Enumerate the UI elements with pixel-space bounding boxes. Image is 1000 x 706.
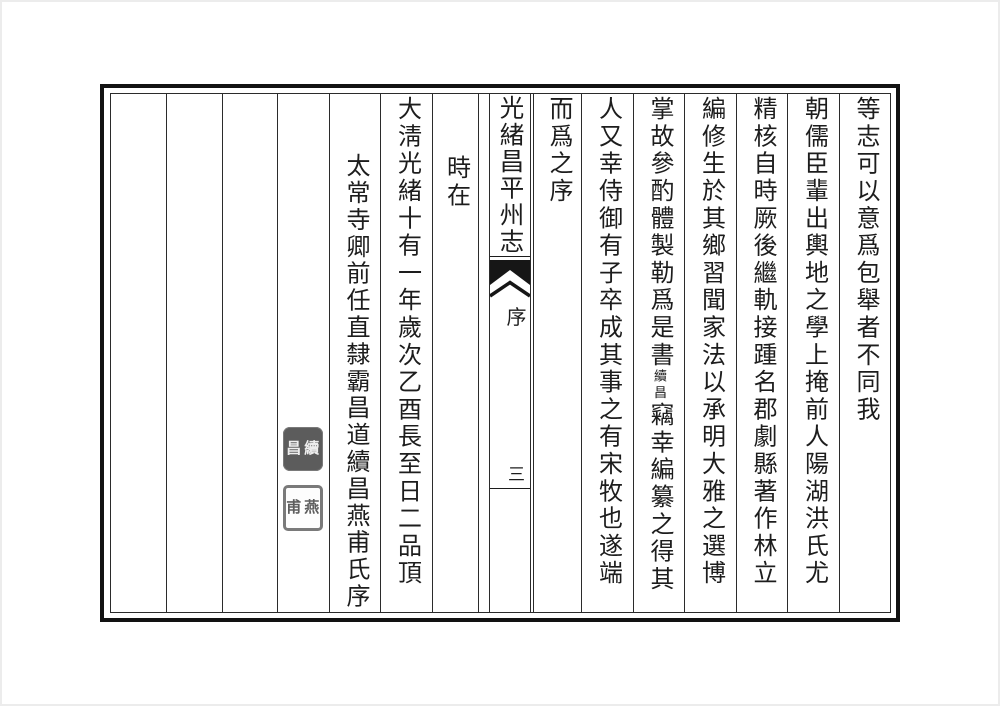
banxin-divider-line (490, 256, 530, 257)
text-column-3: 精核自時厥後繼軌接踵名郡劇縣著作林立繆 (736, 94, 788, 612)
text-column-10-signature: 太常寺卿前任直隸霸昌道續昌燕甫氏序 (329, 94, 381, 612)
text-columns-area: 等志可以意爲包舉者不同我 朝儒臣輩出輿地之學上掩前人陽湖洪氏尤爲 精核自時厥後繼… (111, 94, 890, 612)
text-column-7: 而爲之序 (533, 94, 582, 612)
seal-stamp-xuchang: 續 昌 (283, 427, 323, 471)
book-page-scan: { "banxin": { "title": "光緒昌平州志", "sectio… (0, 0, 1000, 706)
banxin-strip: 光緒昌平州志 序 三 (489, 94, 531, 612)
empty-column (111, 94, 166, 612)
interlinear-note: 續昌 (649, 369, 667, 402)
text-column-6: 人又幸侍御有子卒成其事之有宋牧也遂端牘 (581, 94, 633, 612)
banxin-column: 光緒昌平州志 序 三 (478, 94, 533, 612)
text-column-5: 掌故參酌體製勒爲是書續昌竊幸編纂之得其 (633, 94, 685, 612)
empty-column (166, 94, 221, 612)
seal-stamp-yanfu: 燕 甫 (283, 485, 323, 531)
page-number: 三 (497, 460, 537, 485)
seal-column: 續 昌 燕 甫 (277, 94, 329, 612)
book-title: 光緒昌平州志 (490, 95, 530, 255)
text-column-4: 編修生於其鄉習聞家法以承明大雅之選博稽 (684, 94, 736, 612)
section-label: 序 (497, 301, 537, 330)
empty-column (222, 94, 277, 612)
text-column-2: 朝儒臣輩出輿地之學上掩前人陽湖洪氏尤爲 (787, 94, 839, 612)
outer-border-frame: 等志可以意爲包舉者不同我 朝儒臣輩出輿地之學上掩前人陽湖洪氏尤爲 精核自時厥後繼… (100, 84, 900, 622)
inner-border-frame: 等志可以意爲包舉者不同我 朝儒臣輩出輿地之學上掩前人陽湖洪氏尤爲 精核自時厥後繼… (110, 93, 891, 613)
seal-char: 燕 (303, 501, 321, 516)
column-5-main-text: 掌故參酌體製勒爲是書 (646, 96, 672, 369)
seal-char: 甫 (285, 501, 303, 516)
text-column-1: 等志可以意爲包舉者不同我 (839, 94, 891, 612)
column-5-continued-text: 竊幸編纂之得其 (646, 402, 672, 593)
seal-char: 昌 (285, 442, 303, 457)
text-column-8: 時在 (432, 94, 478, 612)
seal-char: 續 (303, 442, 321, 457)
text-column-9: 大淸光緒十有一年歲次乙酉長至日二品頂戴 (380, 94, 432, 612)
fishtail-ornament-icon (490, 260, 530, 306)
banxin-divider-line-2 (490, 488, 530, 489)
